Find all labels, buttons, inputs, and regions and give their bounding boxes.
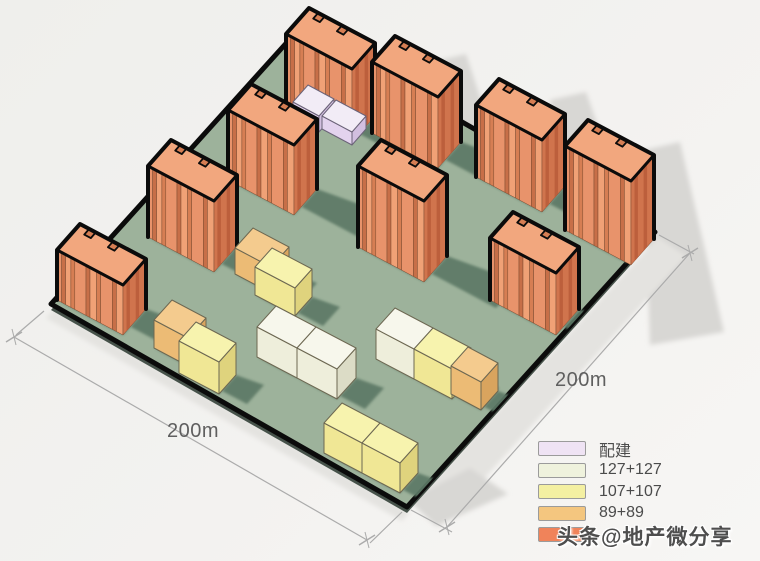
site-massing-diagram: 200m 200m 配建 127+127 107+107 89+89 头条@地产… bbox=[0, 0, 760, 561]
legend-item: 127+127 bbox=[538, 460, 662, 482]
legend-label: 89+89 bbox=[599, 504, 644, 522]
dimension-label-right: 200m bbox=[546, 369, 616, 392]
legend-item: 107+107 bbox=[538, 481, 662, 503]
legend-label: 107+107 bbox=[599, 483, 662, 501]
legend-swatch-107 bbox=[538, 484, 586, 499]
watermark: 头条@地产微分享 bbox=[557, 521, 732, 551]
dimension-label-left: 200m bbox=[158, 420, 228, 443]
legend-swatch-peijian bbox=[538, 441, 586, 456]
legend-item: 配建 bbox=[538, 438, 662, 460]
legend-swatch-127 bbox=[538, 463, 586, 478]
legend-label: 127+127 bbox=[599, 461, 662, 479]
legend-label: 配建 bbox=[599, 437, 631, 461]
legend-swatch-89 bbox=[538, 506, 586, 521]
